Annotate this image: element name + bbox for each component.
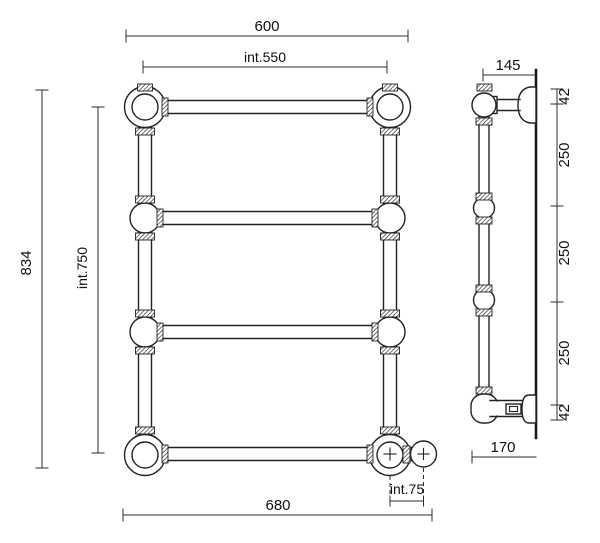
valve-body [506,404,521,414]
dim-label-145: 145 [495,57,520,74]
ball-joint [474,290,495,311]
ball-joint [474,198,495,219]
valve-connector-hatch [403,446,410,463]
dim-label-170: 170 [490,439,515,456]
bottom-elbow-assembly [471,394,536,423]
dim-depth-bottom: 170 [472,439,536,463]
side-post-tube [479,110,489,400]
dim-label-seg-250-3: 250 [556,340,573,365]
post-collars [136,84,400,434]
left-post-tube [139,112,152,448]
ball-joint [130,203,160,233]
side-ball-joints [472,93,496,311]
ball-joint [472,93,496,117]
front-view: 600 int.550 834 int.750 680 [18,18,437,521]
dim-width-top: 600 [126,18,408,42]
dim-label-seg-42-top: 42 [556,88,573,105]
towel-rail-3 [160,326,375,339]
bottom-wall-bracket [522,395,536,423]
towel-rail-technical-drawing: 600 int.550 834 int.750 680 [0,0,600,543]
ball-joint [375,317,405,347]
dim-height-inner: int.750 [74,107,104,453]
side-view: 145 42 250 250 250 42 170 [471,57,573,463]
dim-label-int750: int.750 [74,247,90,289]
ball-joint [130,317,160,347]
dim-label-int75: int.75 [390,481,424,497]
dim-label-seg-250-2: 250 [556,240,573,265]
dim-label-seg-42-bottom: 42 [556,404,573,421]
towel-rail-1 [165,101,370,114]
rail-sockets [157,98,378,463]
left-post-ball-joints [125,87,166,476]
ball-joint [375,203,405,233]
top-wall-bracket [492,87,536,123]
dim-width-bottom: 680 [123,497,432,521]
right-post-ball-joints [370,87,411,476]
dim-label-seg-250-1: 250 [556,142,573,167]
drawing-canvas: 600 int.550 834 int.750 680 [0,0,600,543]
dim-label-834: 834 [18,250,35,275]
dim-valve-spacing: int.75 [390,481,424,506]
dim-width-inner: int.550 [143,49,387,73]
towel-rail-2 [160,212,375,225]
right-post-tube [384,112,397,448]
dim-depth-top: 145 [483,57,536,81]
dim-height-total: 834 [18,90,48,468]
dim-label-int550: int.550 [244,49,286,65]
dim-label-600: 600 [254,18,279,35]
dim-vertical-segments: 42 250 250 250 42 [551,88,573,421]
dim-label-680: 680 [265,497,290,514]
